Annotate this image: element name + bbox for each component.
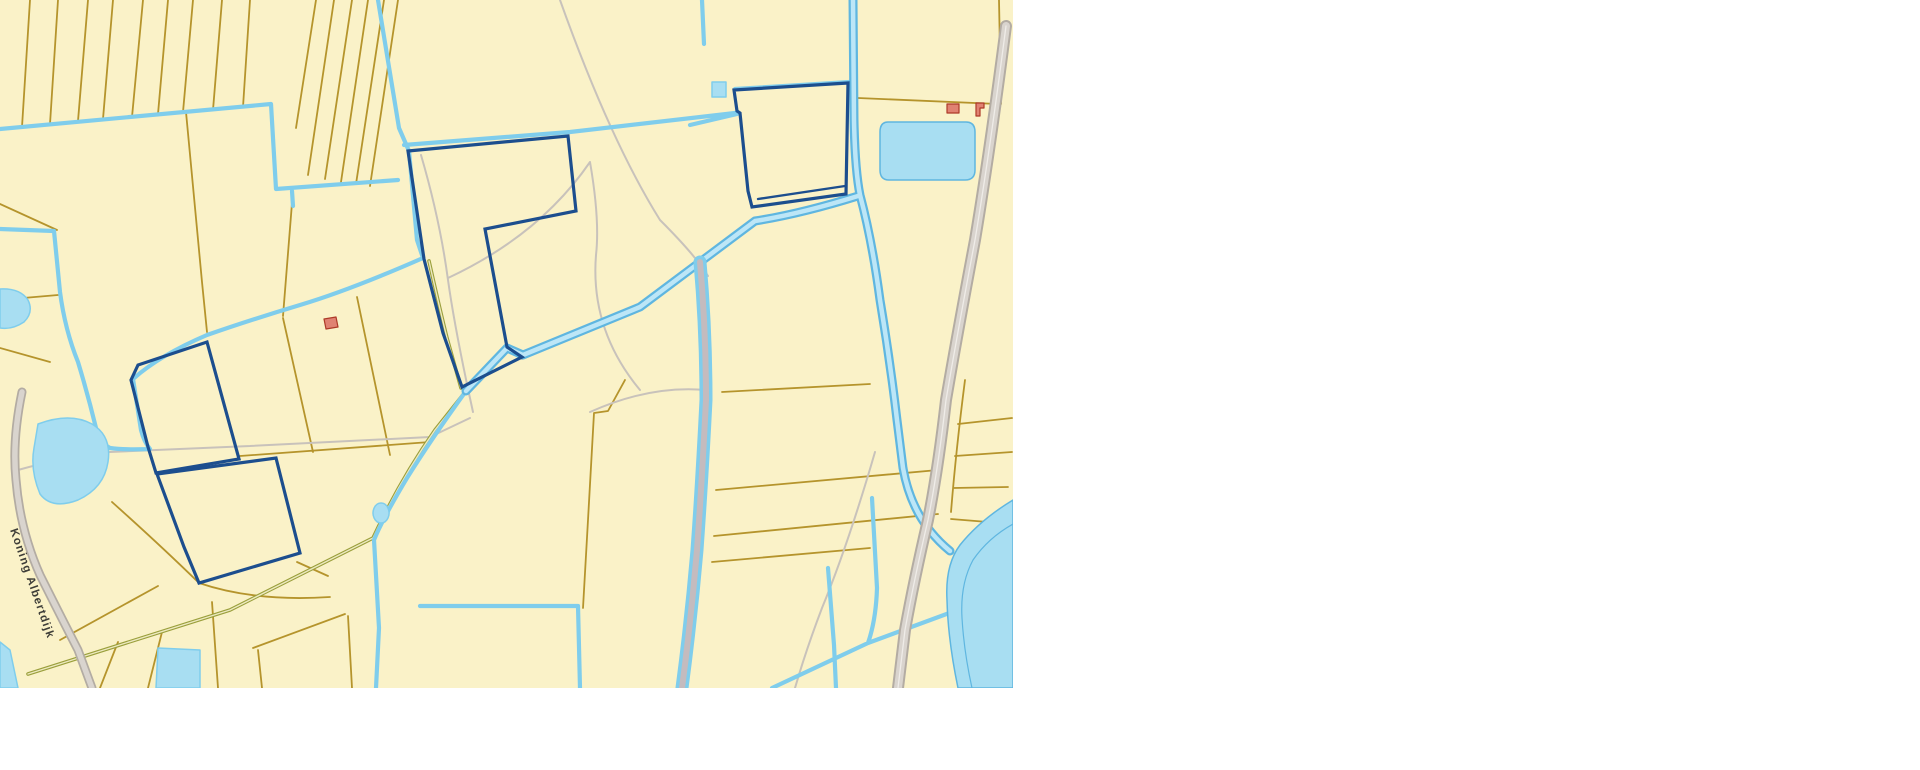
app-page: Koning Albertdijk bbox=[0, 0, 1920, 770]
map-canvas[interactable]: Koning Albertdijk bbox=[0, 0, 1013, 688]
pond-topright bbox=[880, 122, 975, 180]
cadastral-map[interactable]: Koning Albertdijk bbox=[0, 0, 1013, 688]
